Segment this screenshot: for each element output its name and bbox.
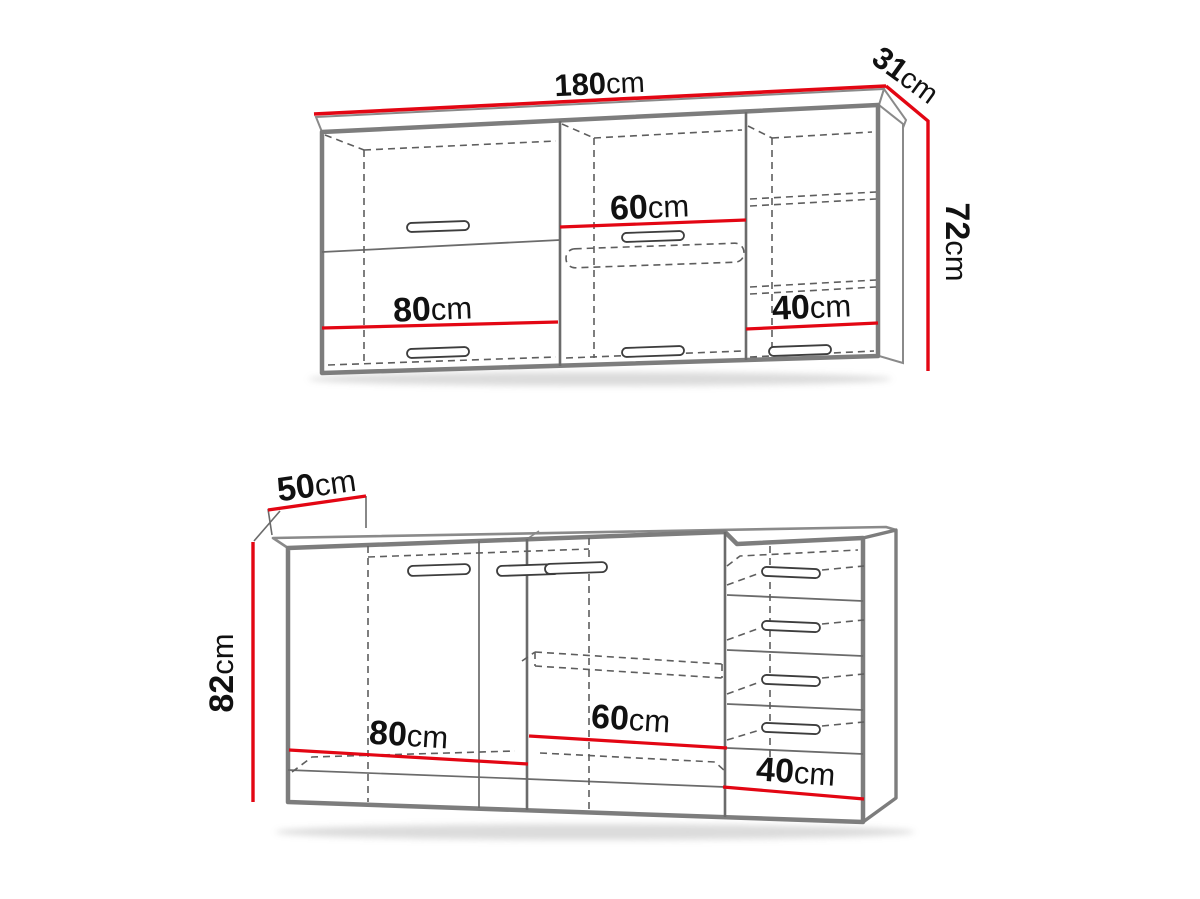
base-height-label: 82cm — [203, 633, 241, 712]
base-cabinet-shadow — [275, 824, 915, 840]
wall-height-label: 72cm — [938, 202, 976, 281]
door-handle — [622, 346, 684, 357]
wall-section-40-label: 40cm — [771, 286, 852, 327]
base-section-60-label: 60cm — [590, 698, 671, 741]
door-handle — [408, 564, 470, 576]
wall-section-80-label: 80cm — [392, 288, 473, 329]
diagram-canvas: 180cm 31cm 72cm 80cm 60cm 40cm — [0, 0, 1200, 899]
drawer-handle — [762, 675, 820, 687]
door-handle — [407, 347, 469, 358]
base-depth-label: 50cm — [275, 461, 359, 510]
base-section-80-label: 80cm — [368, 714, 449, 757]
drawer-handle — [762, 621, 820, 633]
door-handle — [545, 562, 607, 574]
cabinet-dimension-drawing: 180cm 31cm 72cm 80cm 60cm 40cm — [0, 0, 1200, 899]
base-cabinet-side-panel — [863, 530, 896, 822]
wall-cabinet-shadow — [308, 372, 892, 386]
door-handle — [407, 221, 469, 232]
wall-width-label: 180cm — [553, 64, 645, 103]
door-handle — [769, 345, 831, 356]
wall-cabinet-drawing: 180cm 31cm 72cm 80cm 60cm 40cm — [308, 39, 976, 386]
base-section-40-label: 40cm — [755, 750, 837, 793]
base-cabinet-drawing: 50cm 82cm 80cm 60cm 40cm — [203, 461, 915, 840]
wall-cabinet-front-face — [322, 105, 878, 373]
door-handle — [622, 231, 684, 242]
wall-section-60-label: 60cm — [609, 186, 690, 227]
wall-cabinet-side-panel — [879, 105, 903, 363]
drawer-handle — [762, 567, 820, 579]
drawer-handle — [762, 723, 820, 735]
